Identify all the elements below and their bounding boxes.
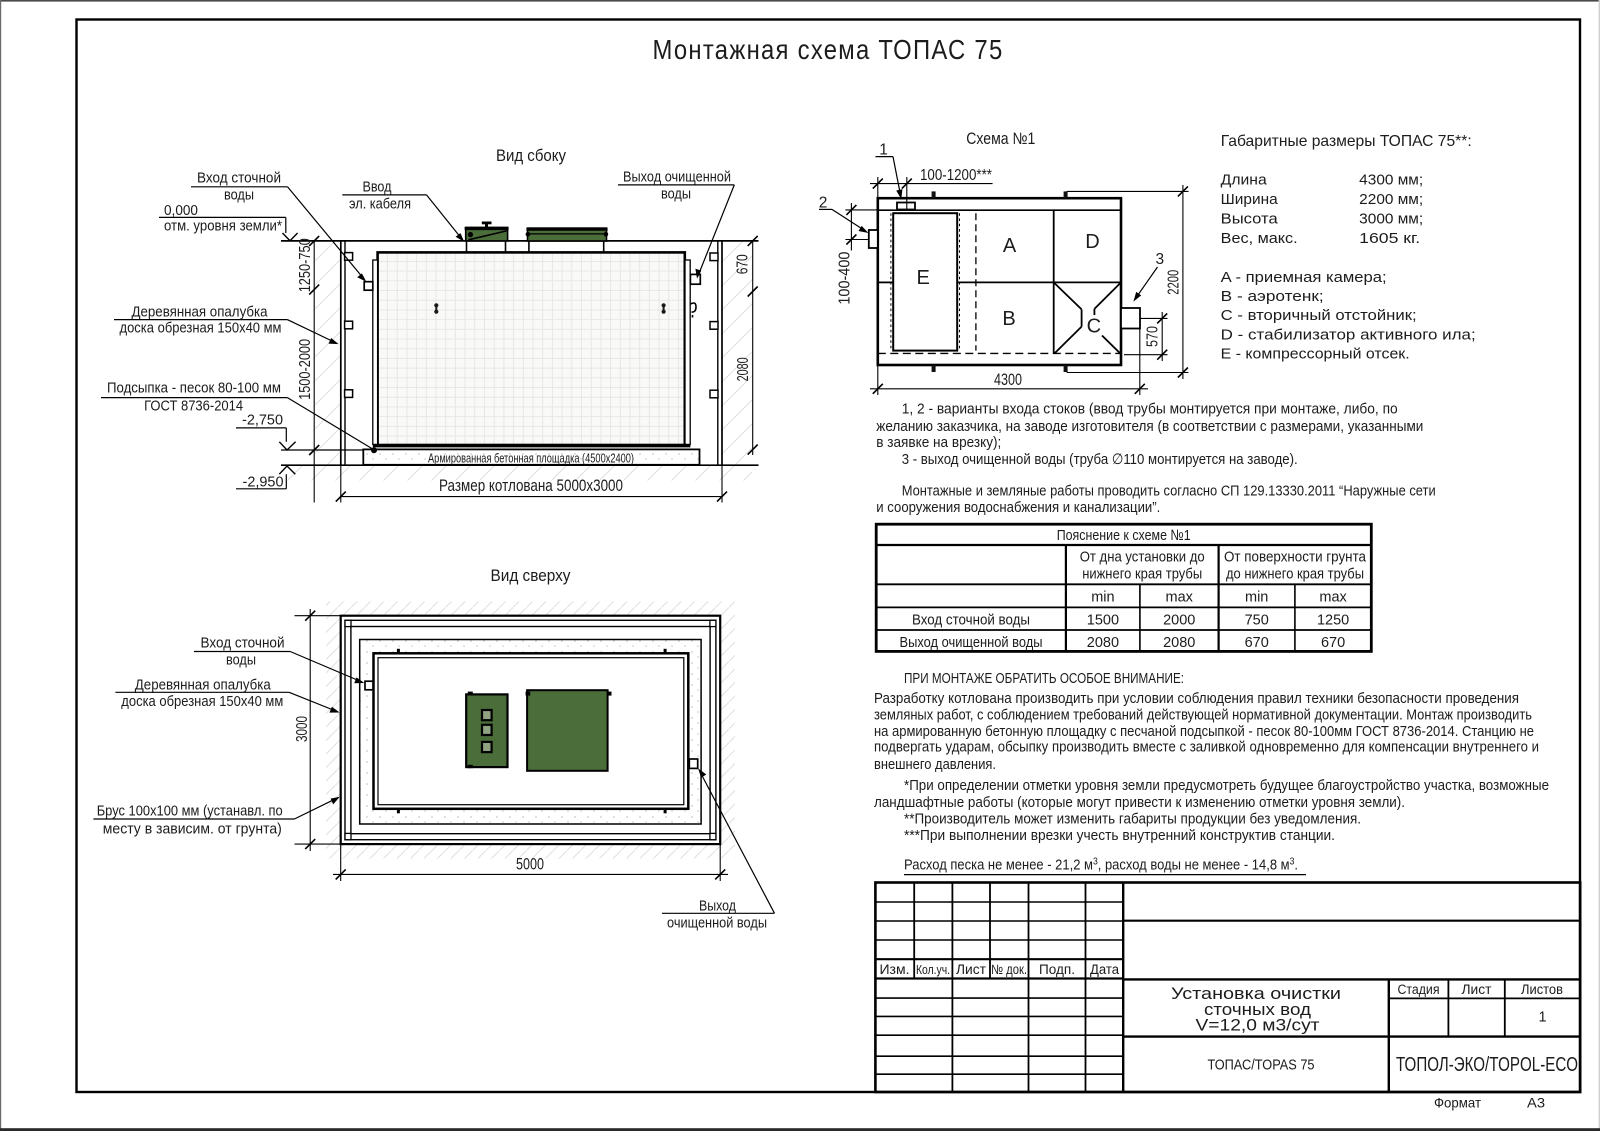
svg-text:1605 кг.: 1605 кг.: [1359, 230, 1420, 247]
svg-text:№ док.: № док.: [991, 962, 1027, 977]
svg-text:подвергать ударам, обсыпку про: подвергать ударам, обсыпку производить в…: [874, 739, 1539, 756]
svg-text:2080: 2080: [735, 357, 752, 381]
svg-text:Лист: Лист: [956, 962, 986, 977]
svg-text:Листов: Листов: [1521, 982, 1563, 997]
svg-text:Армированная бетонная площадка: Армированная бетонная площадка (4500х240…: [428, 452, 634, 466]
svg-text:E - компрессорный отсек.: E - компрессорный отсек.: [1221, 346, 1410, 363]
svg-text:min: min: [1245, 590, 1268, 606]
svg-text:Кол.уч.: Кол.уч.: [916, 963, 950, 977]
svg-text:Схема №1: Схема №1: [966, 130, 1035, 148]
svg-text:очищенной воды: очищенной воды: [667, 916, 767, 932]
svg-text:670: 670: [1245, 635, 1269, 651]
svg-text:570: 570: [1145, 326, 1162, 347]
svg-text:Размер котлована 5000х3000: Размер котлована 5000х3000: [439, 477, 623, 495]
svg-text:1, 2 - варианты входа стоков: 1, 2 - варианты входа стоков (ввод трубы…: [902, 401, 1398, 418]
svg-text:эл. кабеля: эл. кабеля: [349, 197, 411, 213]
svg-text:3 - выход очищенной воды (труб: 3 - выход очищенной воды (труба ∅110 мон…: [902, 451, 1298, 468]
svg-text:1: 1: [879, 142, 888, 159]
svg-text:A: A: [1003, 235, 1017, 257]
svg-text:нижнего края трубы: нижнего края трубы: [1082, 567, 1202, 583]
svg-text:Выход очищенной воды: Выход очищенной воды: [900, 635, 1043, 651]
svg-text:***При выполнении врезки учест: ***При выполнении врезки учесть внутренн…: [904, 827, 1335, 844]
svg-text:*При определении отметки уровн: *При определении отметки уровня земли пр…: [904, 777, 1549, 794]
svg-text:B: B: [1002, 308, 1015, 330]
svg-text:670: 670: [735, 254, 752, 274]
svg-text:1250: 1250: [1317, 613, 1349, 629]
svg-text:3000 мм;: 3000 мм;: [1359, 211, 1423, 228]
svg-text:на армированную бетонную площа: на армированную бетонную площадку с песч…: [874, 723, 1534, 740]
svg-text:3000: 3000: [294, 716, 311, 742]
svg-text:D: D: [1085, 231, 1099, 253]
svg-text:Расход песка не менее - 21,2 м: Расход песка не менее - 21,2 м3, расход …: [904, 857, 1298, 874]
svg-text:E: E: [917, 267, 930, 289]
svg-text:От поверхности грунта: От поверхности грунта: [1224, 550, 1367, 566]
svg-text:месту в зависим. от грунта): месту в зависим. от грунта): [103, 822, 282, 838]
svg-text:3: 3: [1155, 251, 1164, 268]
svg-text:max: max: [1165, 590, 1193, 606]
svg-text:ТОПОЛ-ЭКО/TOPOL-ECO: ТОПОЛ-ЭКО/TOPOL-ECO: [1396, 1053, 1578, 1076]
svg-text:ПРИ МОНТАЖЕ ОБРАТИТЬ ОСОБОЕ ВН: ПРИ МОНТАЖЕ ОБРАТИТЬ ОСОБОЕ ВНИМАНИЕ:: [904, 670, 1184, 687]
svg-text:Вход сточной воды: Вход сточной воды: [912, 613, 1030, 629]
svg-text:внешнего давления.: внешнего давления.: [874, 756, 996, 773]
svg-text:750: 750: [1245, 613, 1269, 629]
svg-text:C: C: [1087, 316, 1101, 338]
svg-text:Длина: Длина: [1221, 172, 1268, 189]
svg-text:2080: 2080: [1087, 635, 1119, 651]
svg-text:доска обрезная 150х40 мм: доска обрезная 150х40 мм: [120, 321, 282, 337]
svg-text:ландшафтные работы (которые мо: ландшафтные работы (которые могут привес…: [874, 794, 1405, 811]
svg-text:4300: 4300: [994, 371, 1022, 389]
svg-text:Деревянная опалубка: Деревянная опалубка: [135, 678, 272, 694]
svg-text:Высота: Высота: [1221, 211, 1279, 228]
svg-text:доска обрезная 150х40 мм: доска обрезная 150х40 мм: [121, 694, 283, 710]
svg-text:Вход сточной: Вход сточной: [201, 636, 285, 652]
svg-text:min: min: [1091, 590, 1114, 606]
svg-text:Формат: Формат: [1434, 1095, 1482, 1111]
svg-text:Вид сверху: Вид сверху: [491, 566, 571, 585]
svg-text:Ширина: Ширина: [1221, 191, 1279, 208]
svg-text:-2,950: -2,950: [243, 474, 284, 490]
svg-text:2000: 2000: [1163, 613, 1195, 629]
svg-text:Вход сточной: Вход сточной: [197, 171, 281, 187]
svg-text:V=12,0 м3/сут: V=12,0 м3/сут: [1196, 1017, 1320, 1035]
svg-text:в заявке на врезку);: в заявке на врезку);: [876, 434, 1001, 451]
svg-text:воды: воды: [661, 187, 691, 203]
svg-text:max: max: [1319, 590, 1347, 606]
svg-text:Монтажная схема ТОПАС 75: Монтажная схема ТОПАС 75: [653, 34, 1004, 65]
svg-text:Деревянная опалубка: Деревянная опалубка: [132, 305, 269, 321]
svg-text:Вид сбоку: Вид сбоку: [496, 146, 566, 165]
svg-text:отм. уровня земли*: отм. уровня земли*: [164, 219, 282, 235]
svg-text:Лист: Лист: [1462, 982, 1492, 997]
svg-text:и сооружения водоснабжения и к: и сооружения водоснабжения и канализации…: [876, 499, 1160, 516]
svg-text:до нижнего края трубы: до нижнего края трубы: [1226, 567, 1364, 583]
svg-text:4300 мм;: 4300 мм;: [1359, 172, 1423, 189]
svg-text:D - стабилизатор активного ила: D - стабилизатор активного ила;: [1221, 327, 1476, 344]
svg-text:желанию заказчика, на заводе и: желанию заказчика, на заводе изготовител…: [876, 418, 1423, 435]
svg-text:От дна установки до: От дна установки до: [1080, 550, 1205, 566]
svg-text:2080: 2080: [1163, 635, 1195, 651]
svg-text:100-400: 100-400: [837, 251, 854, 304]
svg-text:Вес, макс.: Вес, макс.: [1221, 230, 1298, 247]
svg-text:C - вторичный отстойник;: C - вторичный отстойник;: [1221, 307, 1417, 324]
svg-text:ГОСТ 8736-2014: ГОСТ 8736-2014: [144, 399, 243, 415]
svg-text:Монтажные и земляные работы пр: Монтажные и земляные работы проводить со…: [902, 483, 1436, 500]
svg-text:A - приемная камера;: A - приемная камера;: [1221, 269, 1387, 286]
svg-text:670: 670: [1321, 635, 1345, 651]
svg-text:Пояснение к схеме №1: Пояснение к схеме №1: [1057, 527, 1191, 544]
svg-text:1500: 1500: [1087, 613, 1119, 629]
svg-text:Стадия: Стадия: [1398, 982, 1440, 997]
svg-text:Выход очищенной: Выход очищенной: [623, 170, 731, 186]
svg-text:ТОПАС/TOPAS 75: ТОПАС/TOPAS 75: [1208, 1058, 1315, 1074]
svg-text:Ввод: Ввод: [363, 180, 392, 196]
svg-text:2200: 2200: [1165, 269, 1182, 294]
svg-text:-2,750: -2,750: [242, 413, 283, 429]
svg-text:1250-750: 1250-750: [297, 238, 314, 292]
svg-text:земляных работ, с соблюдением: земляных работ, с соблюдением требований…: [874, 707, 1532, 724]
svg-text:Брус 100х100 мм (устанавл. по: Брус 100х100 мм (устанавл. по: [97, 804, 283, 820]
svg-text:воды: воды: [226, 653, 256, 669]
svg-text:воды: воды: [224, 188, 254, 204]
svg-text:Габаритные размеры ТОПАС 75**:: Габаритные размеры ТОПАС 75**:: [1221, 133, 1472, 150]
svg-text:**Производитель может изменить: **Производитель может изменить габариты …: [904, 811, 1361, 828]
svg-text:0,000: 0,000: [164, 203, 198, 219]
svg-text:Изм.: Изм.: [880, 962, 910, 977]
svg-text:1500-2000: 1500-2000: [297, 339, 314, 400]
svg-text:B - аэротенк;: B - аэротенк;: [1221, 288, 1324, 305]
svg-text:Подп.: Подп.: [1039, 962, 1075, 977]
svg-text:А3: А3: [1527, 1095, 1545, 1111]
svg-text:2200 мм;: 2200 мм;: [1359, 191, 1423, 208]
svg-text:Выход: Выход: [699, 899, 736, 915]
svg-text:Дата: Дата: [1090, 962, 1119, 977]
svg-text:Разработку котлована производи: Разработку котлована производить при усл…: [874, 690, 1519, 707]
svg-text:100-1200***: 100-1200***: [920, 167, 992, 184]
svg-text:5000: 5000: [516, 856, 544, 874]
svg-text:1: 1: [1538, 1010, 1546, 1026]
svg-text:Подсыпка - песок 80-100 мм: Подсыпка - песок 80-100 мм: [107, 381, 281, 397]
